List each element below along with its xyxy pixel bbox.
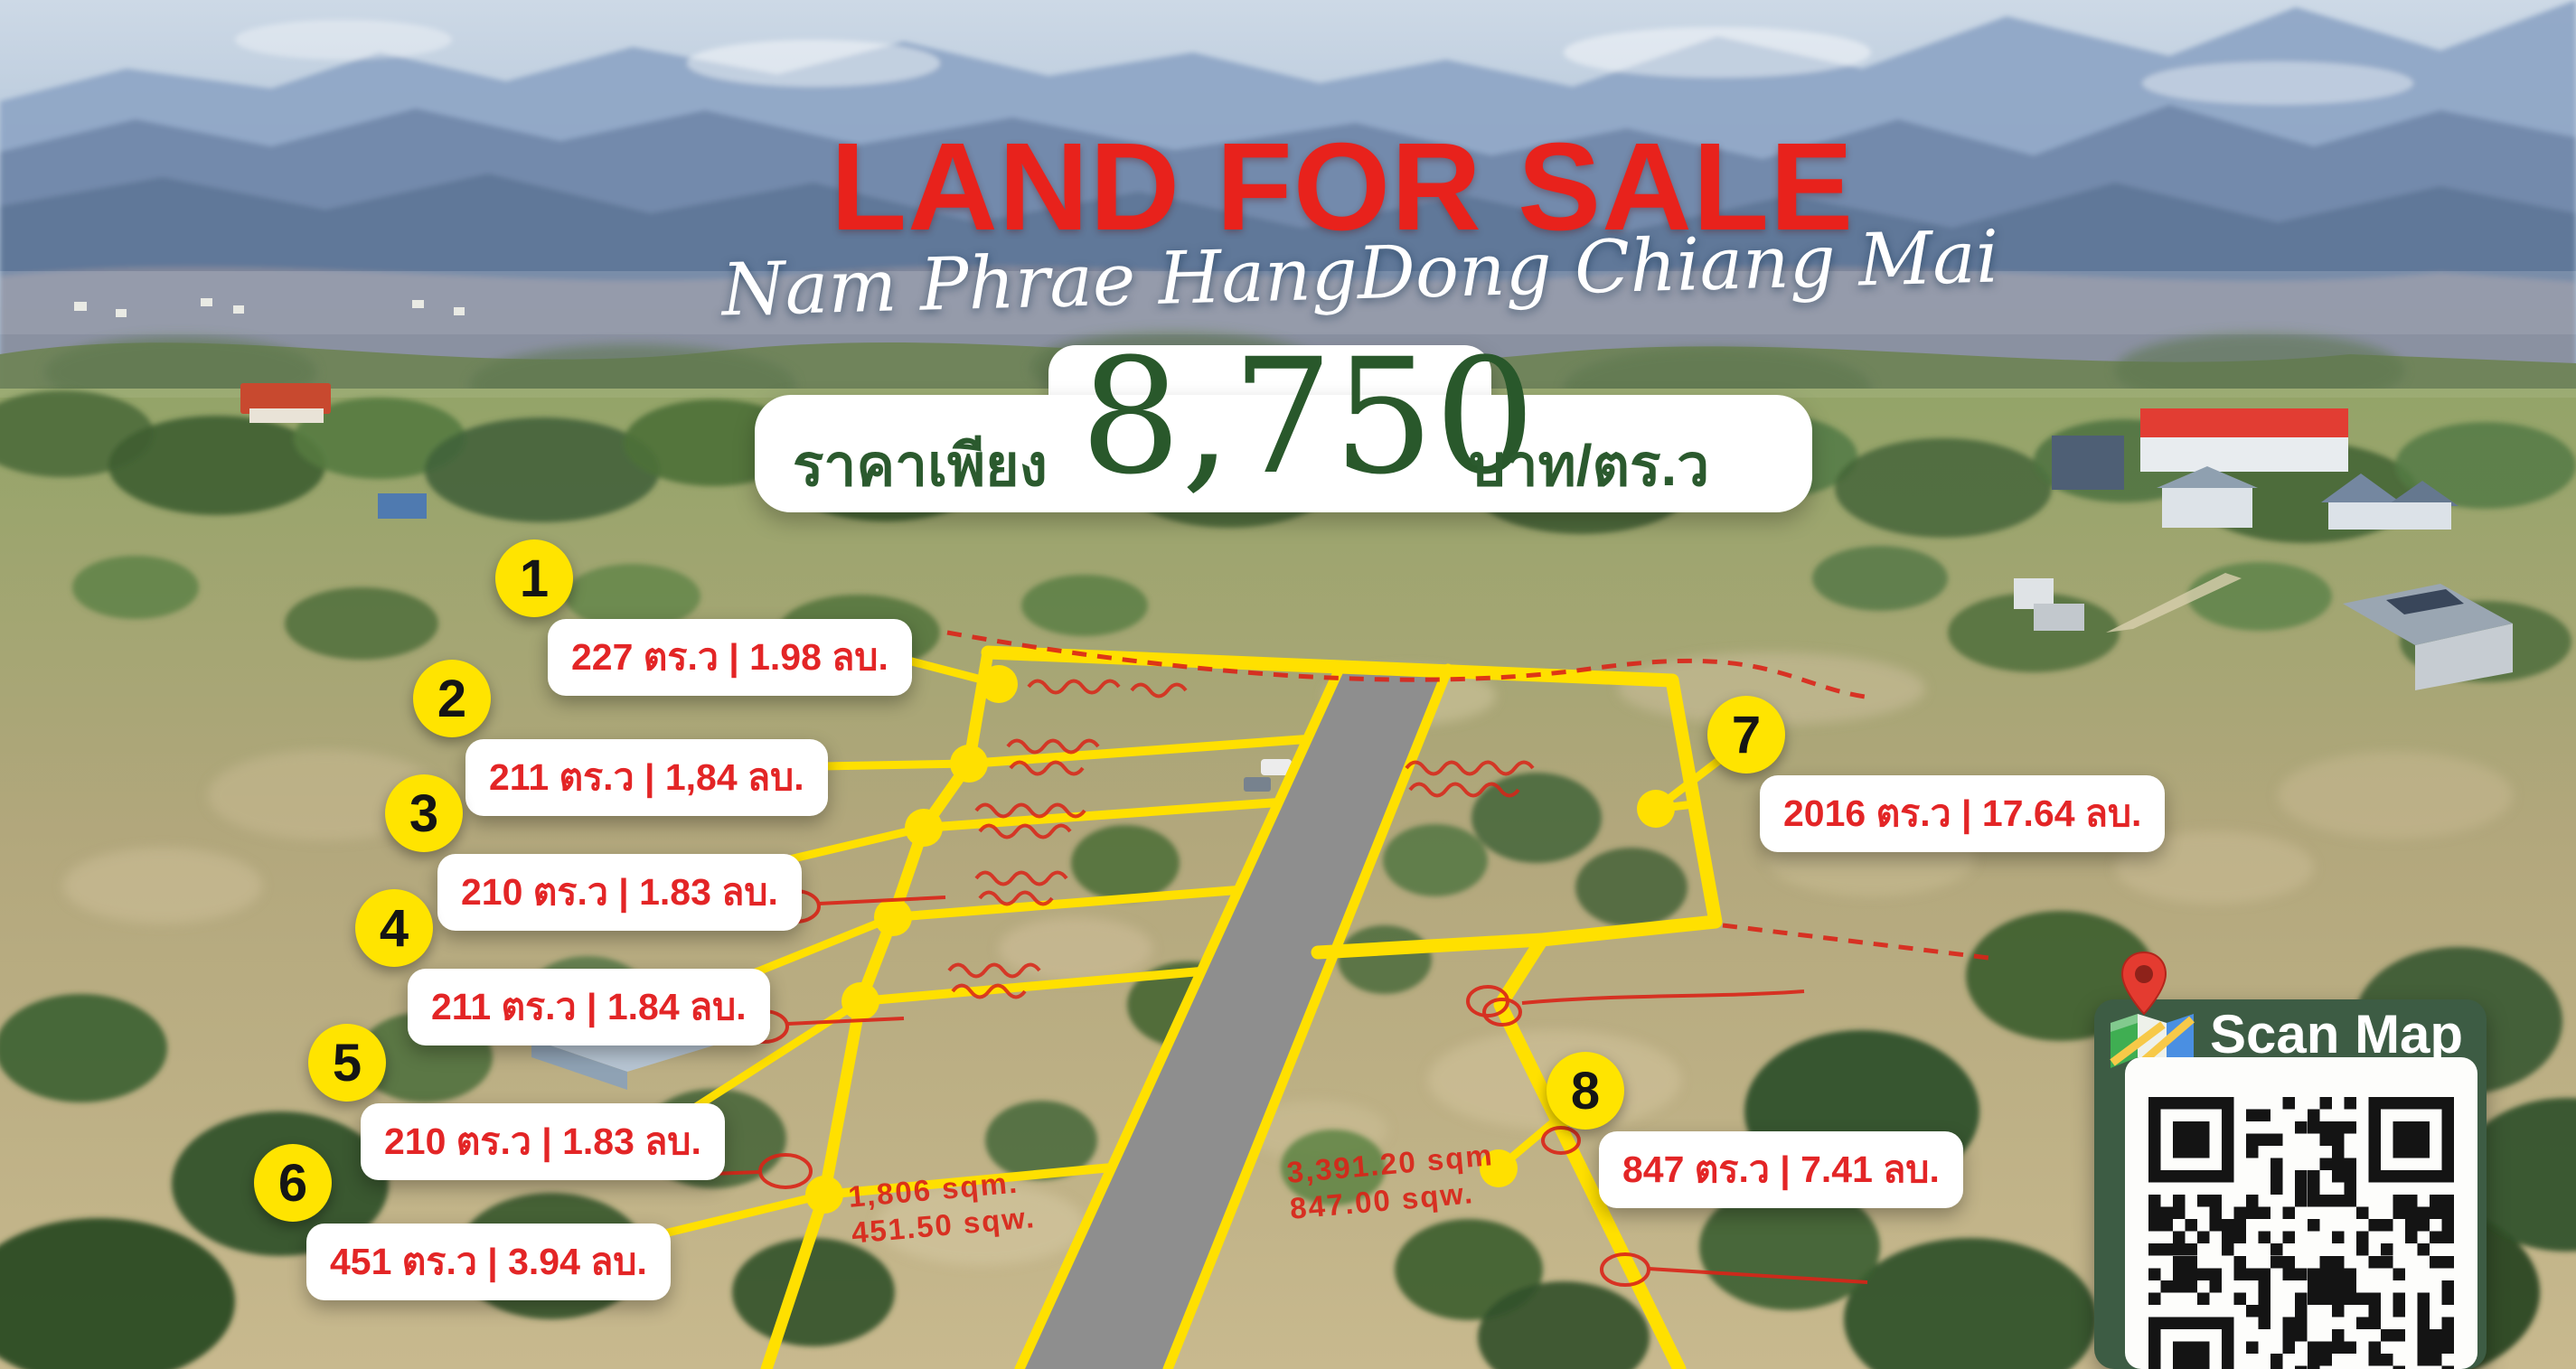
- price-banner: ราคาเพียง 8,750 บาท/ตร.ว: [755, 345, 1812, 512]
- qr-box: [2125, 1057, 2477, 1369]
- plot-number-badge: 1: [495, 539, 573, 617]
- plot-info-box: 847 ตร.ว | 7.41 ลบ.: [1599, 1131, 1963, 1208]
- plot-number-badge: 6: [254, 1144, 332, 1222]
- plot-info-box: 227 ตร.ว | 1.98 ลบ.: [548, 619, 912, 696]
- plot-info-box: 211 ตร.ว | 1.84 ลบ.: [408, 969, 770, 1046]
- plot-number-badge: 4: [355, 889, 433, 967]
- plot-number-badge: 7: [1707, 696, 1785, 774]
- plot-number-badge: 5: [308, 1024, 386, 1102]
- plot-number-badge: 8: [1547, 1052, 1624, 1130]
- price-unit: บาท/ตร.ว: [1469, 419, 1709, 511]
- plot-info-box: 210 ตร.ว | 1.83 ลบ.: [437, 854, 802, 931]
- location-pin-icon: [2120, 951, 2168, 1016]
- plot-info-box: 2016 ตร.ว | 17.64 ลบ.: [1760, 775, 2165, 852]
- plot-info-box: 451 ตร.ว | 3.94 ลบ.: [306, 1224, 671, 1300]
- plot-info-box: 210 ตร.ว | 1.83 ลบ.: [361, 1103, 725, 1180]
- plot-info-box: 211 ตร.ว | 1,84 ลบ.: [465, 739, 828, 816]
- road: [1020, 667, 1448, 1369]
- plot-number-badge: 3: [385, 774, 463, 852]
- plot-number-badge: 2: [413, 660, 491, 737]
- price-amount: 8,750: [1080, 334, 1487, 502]
- land-sale-flyer: LAND FOR SALE Nam Phrae HangDong Chiang …: [0, 0, 2576, 1369]
- scan-map-panel: Scan Map: [2094, 999, 2487, 1369]
- scan-map-label: Scan Map: [2210, 1003, 2463, 1065]
- qr-code[interactable]: [2148, 1097, 2454, 1369]
- price-prefix: ราคาเพียง: [793, 419, 1048, 511]
